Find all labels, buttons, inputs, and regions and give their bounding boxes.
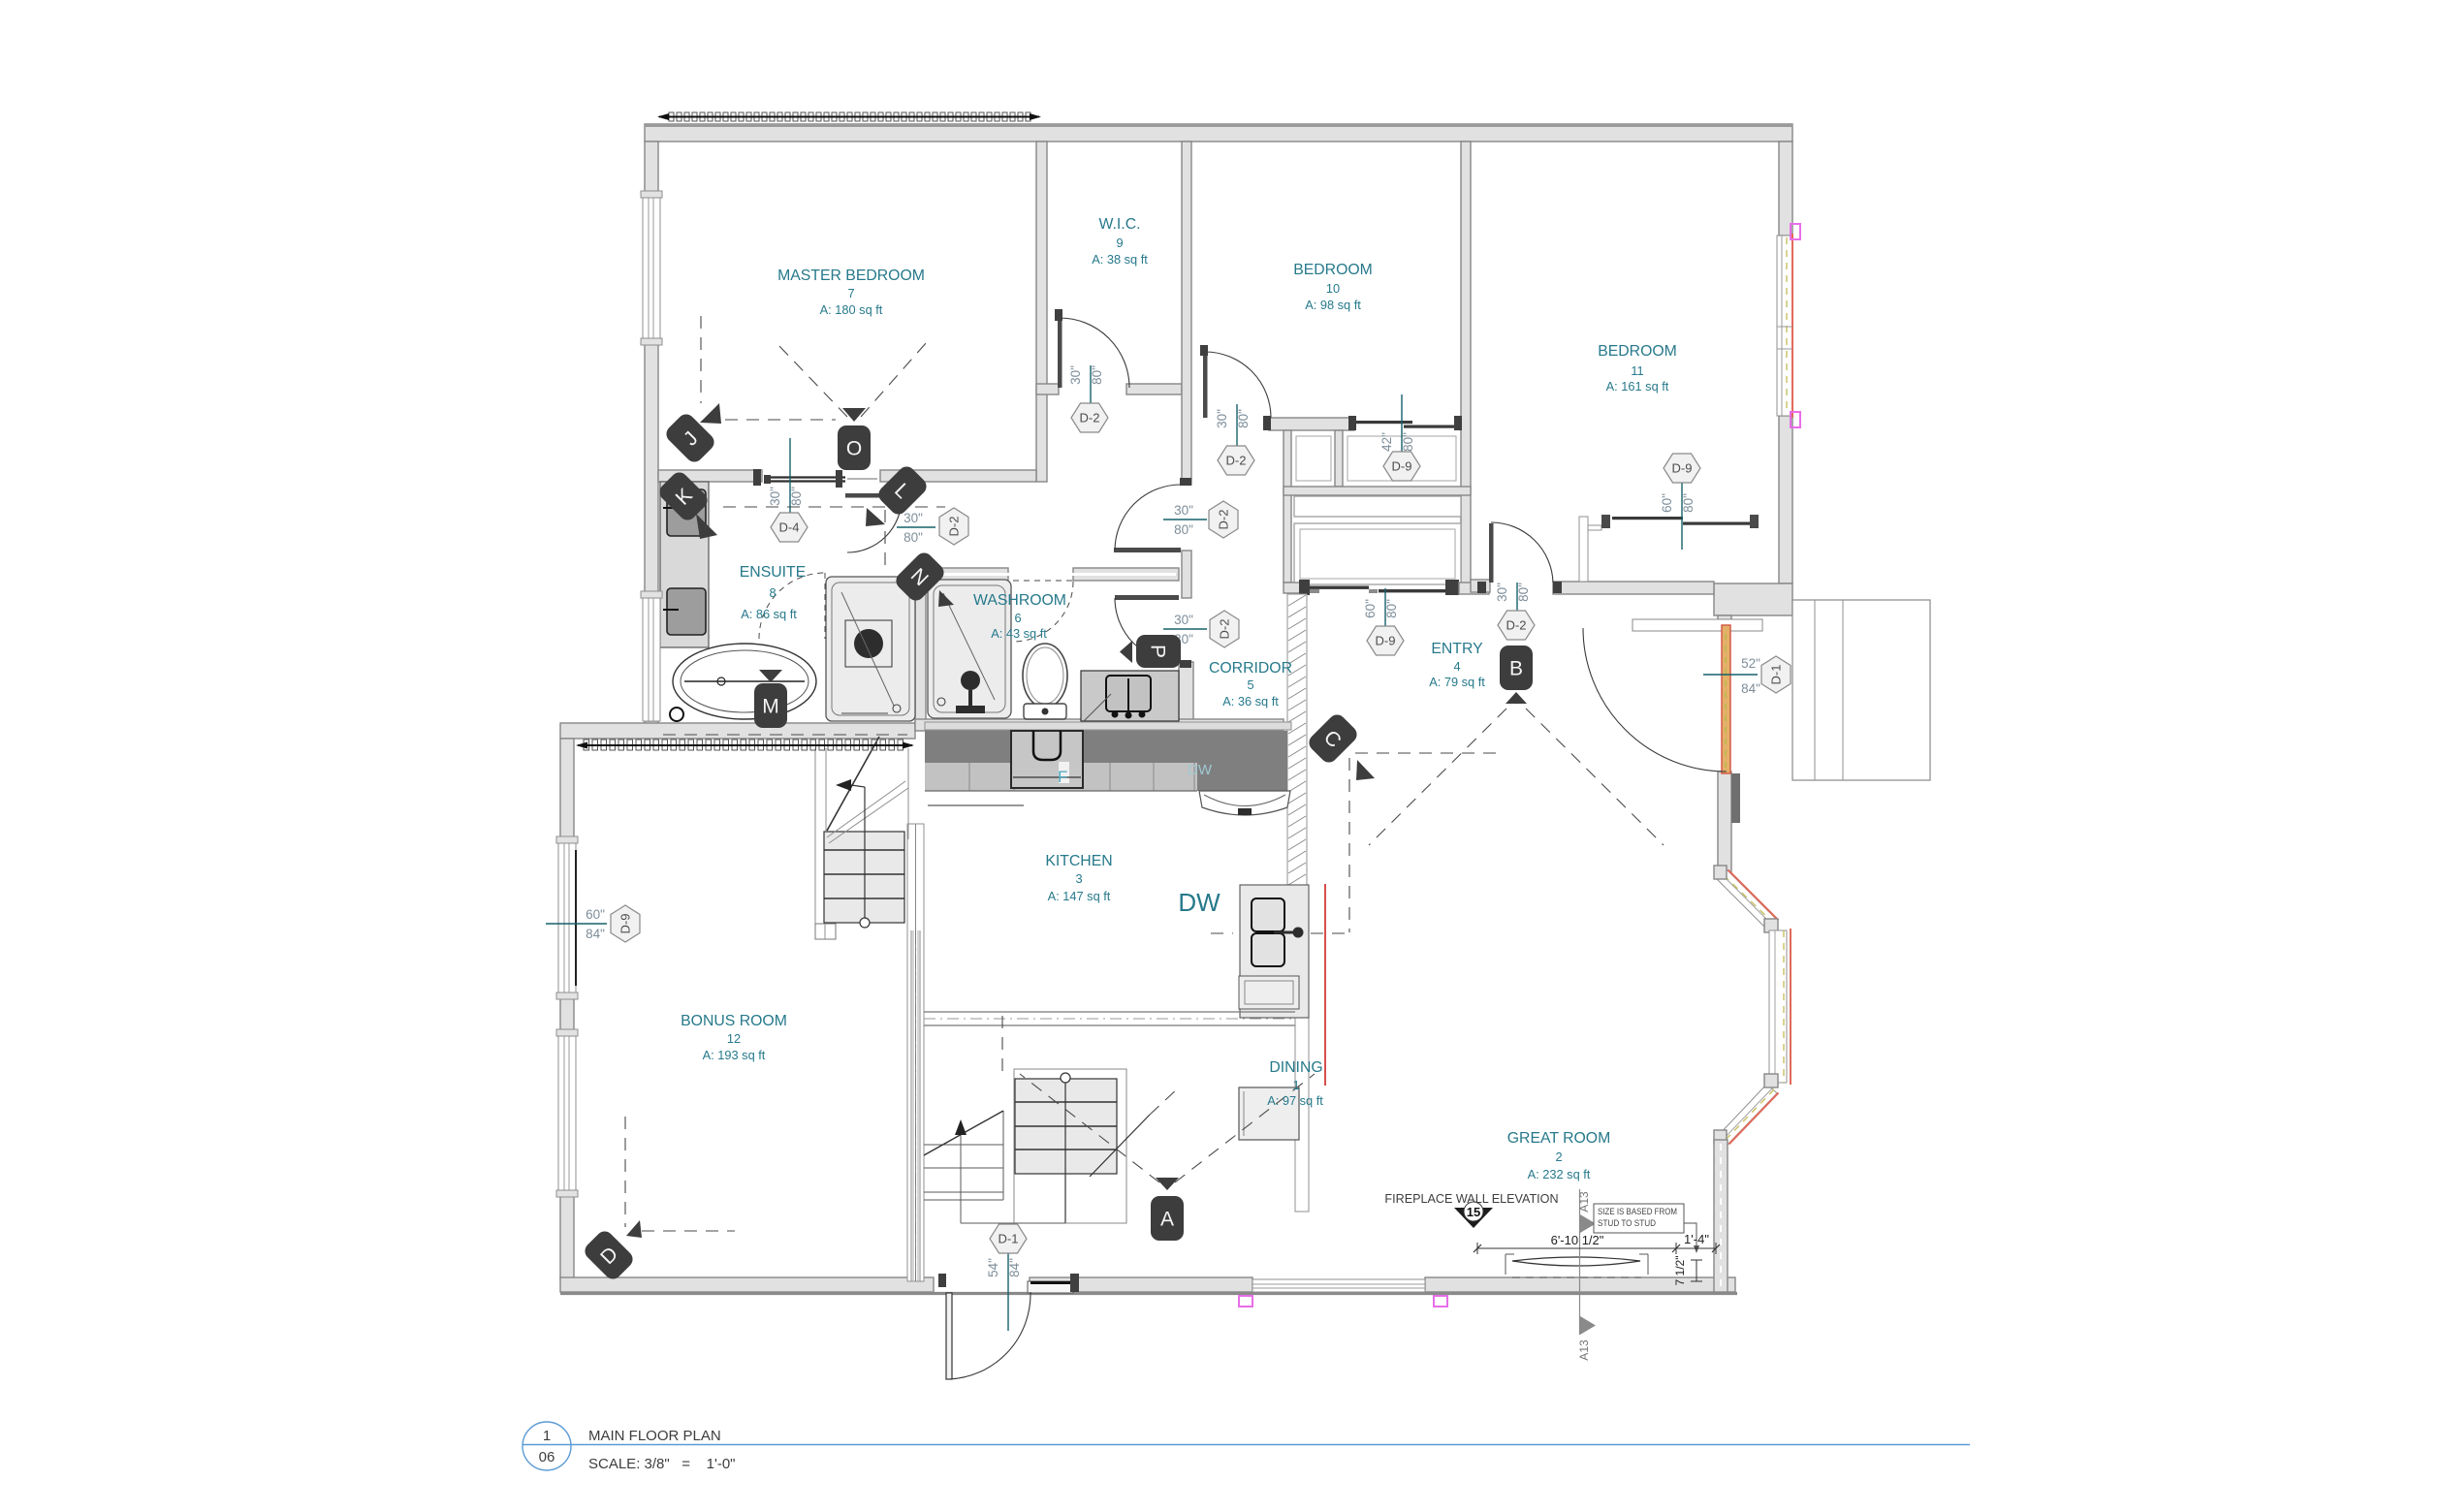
svg-text:A: A [1160, 1209, 1174, 1231]
svg-text:DW: DW [1178, 888, 1220, 917]
svg-text:BONUS ROOM: BONUS ROOM [681, 1013, 787, 1029]
svg-text:MASTER BEDROOM: MASTER BEDROOM [777, 268, 925, 284]
svg-text:1: 1 [1292, 1078, 1299, 1092]
svg-text:ENTRY: ENTRY [1431, 641, 1483, 657]
svg-text:9: 9 [1116, 236, 1123, 250]
svg-text:80": 80" [1174, 522, 1193, 537]
svg-text:WASHROOM: WASHROOM [973, 592, 1066, 609]
svg-text:06: 06 [539, 1449, 555, 1465]
svg-text:D-2: D-2 [1226, 454, 1247, 468]
svg-text:B: B [1509, 658, 1523, 680]
svg-text:84": 84" [586, 927, 605, 941]
svg-text:A13: A13 [1577, 1191, 1591, 1213]
svg-text:D-9: D-9 [1376, 634, 1396, 648]
svg-text:80": 80" [1090, 365, 1104, 385]
svg-text:F: F [1058, 768, 1067, 786]
svg-text:ENSUITE: ENSUITE [740, 564, 806, 581]
svg-text:30": 30" [1068, 365, 1083, 385]
svg-text:STUD TO STUD: STUD TO STUD [1598, 1218, 1656, 1229]
svg-text:5: 5 [1247, 677, 1253, 692]
svg-text:80": 80" [1384, 599, 1399, 618]
svg-text:O: O [846, 438, 862, 460]
svg-text:D-2: D-2 [1218, 619, 1232, 640]
svg-text:15: 15 [1467, 1205, 1480, 1219]
svg-text:30": 30" [1215, 409, 1229, 428]
svg-text:BEDROOM: BEDROOM [1598, 343, 1677, 360]
svg-text:30": 30" [1495, 583, 1509, 602]
svg-text:MAIN FLOOR PLAN: MAIN FLOOR PLAN [588, 1428, 721, 1444]
svg-text:W.I.C.: W.I.C. [1098, 216, 1140, 233]
svg-text:54": 54" [986, 1258, 1000, 1277]
svg-text:CORRIDOR: CORRIDOR [1209, 660, 1292, 677]
svg-text:D-9: D-9 [1672, 461, 1693, 476]
svg-text:7: 7 [847, 286, 854, 300]
svg-text:30": 30" [1174, 503, 1193, 518]
svg-text:1: 1 [543, 1428, 551, 1444]
svg-text:A: 79 sq ft: A: 79 sq ft [1429, 675, 1485, 689]
svg-text:A: 232 sq ft: A: 232 sq ft [1528, 1167, 1591, 1181]
svg-text:KITCHEN: KITCHEN [1045, 853, 1112, 869]
svg-text:SIZE IS BASED FROM: SIZE IS BASED FROM [1598, 1207, 1677, 1217]
svg-text:D-1: D-1 [999, 1232, 1019, 1246]
svg-text:A: 43 sq ft: A: 43 sq ft [991, 626, 1047, 641]
svg-text:60": 60" [586, 907, 605, 922]
svg-text:6'-10 1/2": 6'-10 1/2" [1551, 1233, 1604, 1247]
svg-text:A: 193 sq ft: A: 193 sq ft [703, 1048, 766, 1062]
svg-text:30": 30" [903, 511, 923, 525]
svg-text:D-2: D-2 [947, 517, 962, 537]
svg-text:A: 147 sq ft: A: 147 sq ft [1048, 889, 1111, 903]
svg-text:80": 80" [1236, 409, 1251, 428]
svg-text:D-2: D-2 [1506, 618, 1527, 633]
svg-text:4: 4 [1453, 659, 1460, 674]
svg-text:42": 42" [1379, 432, 1394, 452]
svg-text:BEDROOM: BEDROOM [1293, 262, 1373, 278]
svg-text:80": 80" [1681, 493, 1696, 513]
svg-text:84": 84" [1007, 1258, 1022, 1277]
svg-text:80": 80" [1401, 432, 1415, 452]
svg-text:12: 12 [727, 1031, 741, 1046]
svg-text:GREAT ROOM: GREAT ROOM [1507, 1130, 1611, 1147]
svg-text:A: 36 sq ft: A: 36 sq ft [1222, 694, 1279, 709]
svg-text:A: 161 sq ft: A: 161 sq ft [1606, 379, 1669, 394]
svg-text:M: M [762, 696, 779, 718]
svg-text:SCALE: 3/8" = 1'-0": SCALE: 3/8" = 1'-0" [588, 1456, 736, 1472]
svg-text:D-1: D-1 [1769, 665, 1784, 685]
svg-text:80": 80" [789, 487, 804, 506]
svg-text:D-9: D-9 [1392, 459, 1412, 474]
svg-text:6: 6 [1014, 611, 1021, 625]
svg-text:1'-4": 1'-4" [1684, 1232, 1709, 1246]
svg-text:30": 30" [768, 487, 782, 506]
svg-text:DW: DW [1188, 762, 1213, 778]
svg-text:80": 80" [1516, 583, 1531, 602]
svg-text:8: 8 [769, 585, 776, 600]
svg-text:D-4: D-4 [779, 520, 800, 535]
svg-text:A13: A13 [1577, 1339, 1591, 1361]
svg-text:60": 60" [1660, 493, 1674, 513]
svg-text:10: 10 [1326, 281, 1340, 296]
svg-text:2: 2 [1555, 1150, 1562, 1164]
svg-text:11: 11 [1631, 363, 1643, 378]
svg-text:D-9: D-9 [618, 914, 633, 934]
svg-text:A: 97 sq ft: A: 97 sq ft [1267, 1093, 1323, 1108]
svg-text:A: 180 sq ft: A: 180 sq ft [820, 302, 883, 317]
svg-text:D-2: D-2 [1217, 510, 1231, 530]
svg-text:P: P [1147, 645, 1169, 658]
svg-text:52": 52" [1741, 656, 1760, 671]
svg-text:D-2: D-2 [1080, 411, 1100, 425]
svg-text:84": 84" [1741, 681, 1760, 696]
svg-text:A: 98 sq ft: A: 98 sq ft [1305, 298, 1361, 312]
svg-text:80": 80" [903, 530, 923, 545]
svg-text:60": 60" [1363, 599, 1378, 618]
svg-text:A: 38 sq ft: A: 38 sq ft [1092, 252, 1148, 267]
svg-text:30": 30" [1174, 613, 1193, 627]
svg-text:7 1/2": 7 1/2" [1673, 1256, 1687, 1286]
svg-text:A: 86 sq ft: A: 86 sq ft [741, 607, 797, 621]
svg-text:3: 3 [1075, 871, 1082, 886]
svg-text:DINING: DINING [1269, 1059, 1322, 1076]
